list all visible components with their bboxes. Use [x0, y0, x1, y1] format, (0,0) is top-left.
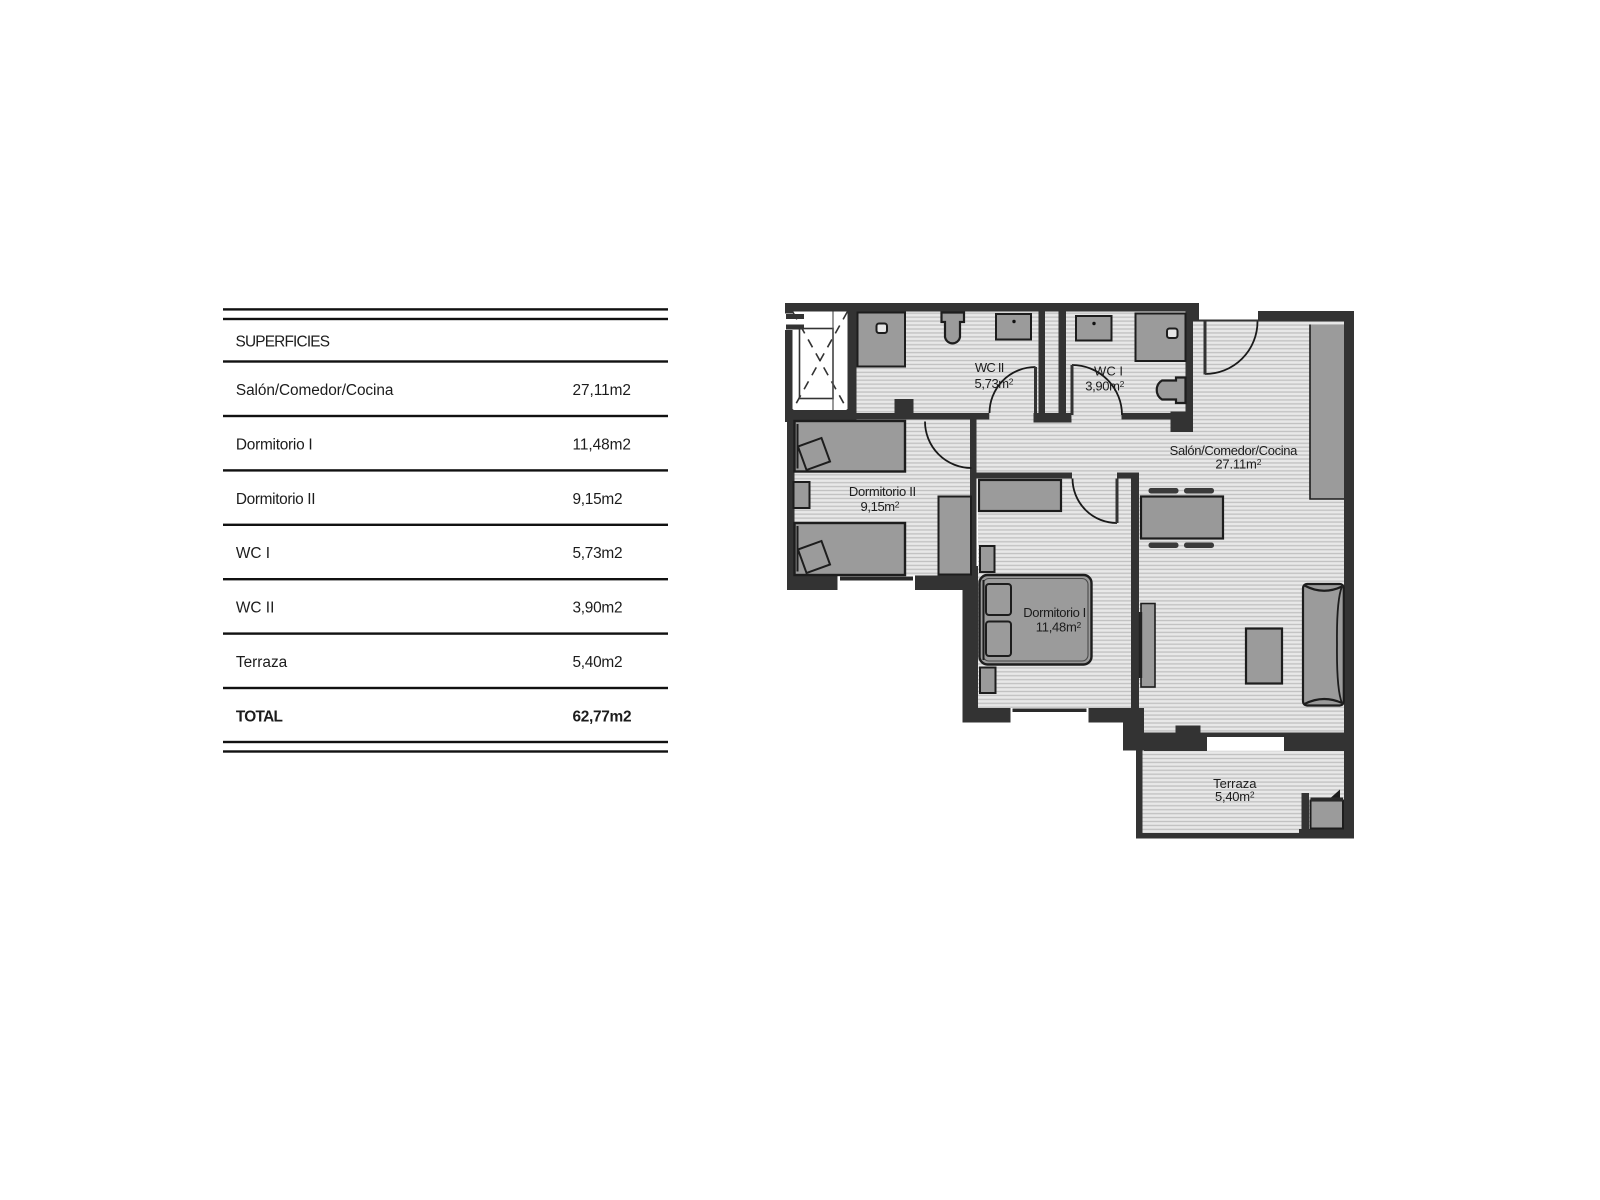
svg-text:Dormitorio I: Dormitorio I	[236, 436, 313, 453]
svg-text:SUPERFICIES: SUPERFICIES	[236, 333, 331, 350]
svg-text:Dormitorio II: Dormitorio II	[236, 491, 316, 508]
svg-text:62,77m2: 62,77m2	[573, 708, 632, 725]
svg-text:3,90m2: 3,90m2	[573, 600, 623, 617]
svg-text:5,73m2: 5,73m2	[573, 545, 623, 562]
svg-text:11,48m2: 11,48m2	[573, 436, 631, 453]
svg-text:WC II: WC II	[975, 360, 1005, 375]
svg-text:5,40m2: 5,40m2	[573, 654, 623, 671]
svg-text:9,15m2: 9,15m2	[861, 499, 900, 514]
svg-text:Salón/Comedor/Cocina: Salón/Comedor/Cocina	[236, 382, 394, 399]
svg-text:Dormitorio I: Dormitorio I	[1023, 605, 1086, 620]
svg-text:Dormitorio II: Dormitorio II	[849, 484, 916, 499]
svg-text:5,40m2: 5,40m2	[1215, 789, 1255, 804]
svg-text:5,73m2: 5,73m2	[975, 376, 1014, 391]
svg-text:11,48m2: 11,48m2	[1036, 620, 1082, 635]
svg-text:9,15m2: 9,15m2	[573, 491, 623, 508]
svg-text:WC II: WC II	[236, 600, 274, 617]
svg-text:WC I: WC I	[236, 545, 270, 562]
svg-text:27,11m2: 27,11m2	[573, 382, 631, 399]
svg-text:27.11m2: 27.11m2	[1215, 456, 1261, 471]
svg-text:TOTAL: TOTAL	[236, 708, 283, 725]
svg-text:WC I: WC I	[1094, 364, 1123, 379]
svg-text:3,90m2: 3,90m2	[1085, 379, 1124, 394]
svg-text:Terraza: Terraza	[236, 654, 288, 671]
